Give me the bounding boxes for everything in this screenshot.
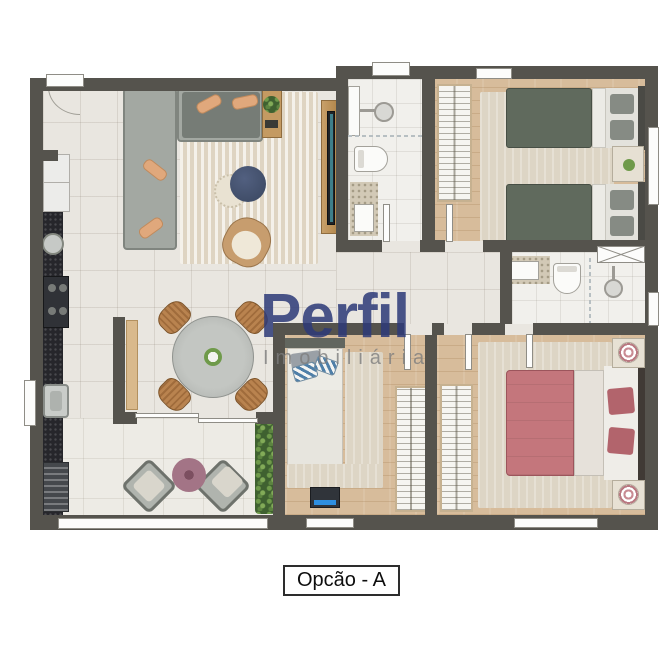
rose-pillow (607, 387, 635, 415)
twin-bed-bottom (506, 184, 645, 244)
bathroom1-cabinet (348, 86, 360, 136)
pillow (610, 94, 634, 114)
bedroom3-rug-band (287, 464, 383, 488)
washing-machine (43, 462, 69, 512)
stove (43, 276, 69, 328)
bedroom3-console (310, 487, 340, 508)
wall-balcony-b (256, 412, 285, 424)
toilet-tank (557, 266, 577, 272)
watermark-tagline: Imobiliária (263, 347, 431, 370)
wall-kitchen-stub (30, 150, 58, 161)
fridge (43, 154, 70, 212)
wall-dining-half (113, 317, 125, 412)
fridge-door-line (44, 182, 69, 183)
burner (48, 307, 56, 315)
armchair-tan-seat (227, 226, 267, 265)
nightstand-plant (623, 159, 635, 171)
watermark-brand: Perfil (260, 286, 409, 348)
bathroom1-door (383, 204, 390, 242)
dining-bench (126, 320, 138, 410)
tv-screen (327, 111, 335, 225)
balcony-railing-window (58, 518, 268, 529)
pillow (610, 190, 634, 210)
twin-bed-bottom-sheet (592, 184, 606, 244)
double-bed-duvet (506, 370, 574, 476)
bedroom3-wardrobe (395, 386, 427, 512)
bedroom1-rug-band (480, 144, 614, 188)
side-table-plant (263, 96, 280, 113)
rose-pillow (607, 427, 635, 455)
master-bedroom-window (514, 518, 598, 528)
pouf-mauve (172, 458, 206, 492)
bedroom1-right-window (648, 127, 659, 205)
wall-bathroom1-left (336, 79, 348, 252)
double-bed (506, 364, 645, 482)
wall-corridor-bottom-d (533, 323, 658, 335)
bedroom3-window (306, 518, 354, 528)
bedroom1-door (446, 204, 453, 242)
pillow (610, 216, 634, 236)
wall-left (30, 78, 43, 530)
shower-head (374, 102, 394, 122)
single-bed-duvet (287, 390, 343, 464)
bedroom1-wardrobe (437, 84, 472, 202)
burner (48, 284, 56, 292)
double-bed-runner (574, 370, 604, 476)
bathroom2-door (526, 334, 533, 368)
side-table-book (265, 120, 278, 128)
headboard (638, 364, 645, 482)
toilet (354, 146, 388, 172)
bedroom1-door-opening (445, 241, 483, 252)
toilet-tank (358, 150, 364, 168)
wall-bathroom1-bedroom1 (422, 79, 435, 246)
bathroom1-door-opening (382, 241, 420, 252)
headboard (638, 86, 645, 150)
twin-bed-top (506, 88, 645, 148)
nightstand-decor (618, 342, 639, 363)
wall-balcony-a (113, 412, 137, 424)
laundry-basin (50, 391, 62, 411)
master-wardrobe (440, 384, 473, 512)
tv-screen-glow (330, 114, 333, 222)
wall-corridor-top-a (336, 240, 382, 252)
balcony-armchair-seat (132, 469, 166, 503)
bedroom1-top-window (476, 68, 512, 79)
wall-corridor-bottom-b (432, 323, 444, 335)
laundry-sink (43, 384, 69, 418)
shaft-cabinet-x (597, 246, 645, 263)
toilet (553, 263, 581, 294)
shower-head (604, 279, 623, 298)
shower-arm (612, 266, 615, 280)
bathroom2-window (648, 292, 659, 326)
burner (59, 284, 67, 292)
balcony-planter (255, 420, 275, 514)
twin-bed-top-sheet (592, 88, 606, 148)
balcony-slider-leaf-1 (135, 413, 199, 418)
bathroom1-sink (354, 204, 374, 232)
entrance-door (46, 74, 84, 87)
master-door (465, 334, 472, 370)
table-centerpiece (204, 348, 222, 366)
wall-corridor-top-b (420, 240, 445, 252)
balcony-slider-leaf-2 (198, 418, 258, 423)
shower-glass-partition (348, 135, 430, 137)
shower-glass-partition (589, 258, 591, 325)
twin-bed-top-duvet (506, 88, 592, 148)
double-bed-mattress (604, 366, 638, 480)
kitchen-sink (42, 233, 64, 255)
burner (59, 307, 67, 315)
bedroom1-nightstand (612, 146, 644, 182)
nightstand-decor (618, 484, 639, 505)
headboard (638, 182, 645, 246)
pouf-navy (230, 166, 266, 202)
service-area-window (24, 380, 36, 426)
floor-plan: Perfil Imobiliária Opcão - A (0, 0, 665, 665)
twin-bed-bottom-duvet (506, 184, 592, 244)
pillow (610, 120, 634, 140)
console-light (314, 500, 336, 505)
bathroom2-sink (511, 261, 539, 280)
wall-bathroom2-left (500, 252, 512, 335)
bathroom1-window (372, 62, 410, 76)
plan-option-label: Opcão - A (283, 565, 400, 596)
